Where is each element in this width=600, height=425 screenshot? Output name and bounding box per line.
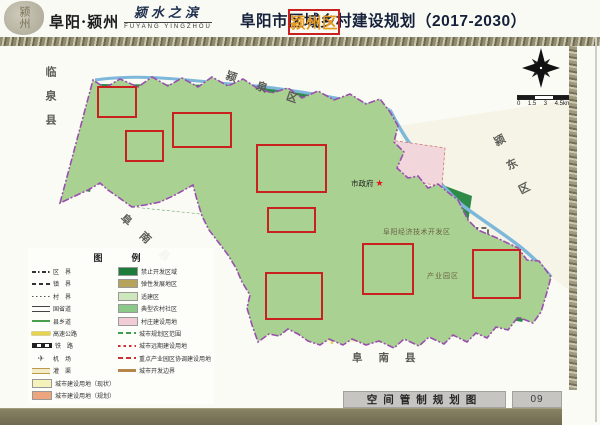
canal-symbol bbox=[32, 368, 50, 374]
yingzhou-seal-logo: 颍州 bbox=[4, 1, 44, 35]
highlight-box-3 bbox=[172, 112, 232, 148]
title-highlight: 颍州区 bbox=[288, 9, 340, 35]
legend-item: 城市开发边界 bbox=[118, 366, 210, 375]
scale-tick: 3 bbox=[544, 101, 547, 107]
highlight-box-2 bbox=[125, 130, 164, 162]
urban-planned-swatch bbox=[32, 391, 52, 400]
city-hall-star-icon: ★ bbox=[376, 179, 384, 188]
drawing-caption: 空间管制规划图 bbox=[343, 391, 506, 408]
city-hall-label: 市政府 bbox=[351, 178, 374, 189]
legend-item: 城市建设用地（规划） bbox=[32, 391, 112, 400]
long-term-land-symbol bbox=[118, 345, 136, 347]
legend-right-column: 禁止开发区域 弹性发展地区 适建区 典型农村社区 村庄建设用地 城市规划区范围 … bbox=[118, 267, 210, 400]
national-road-symbol bbox=[32, 306, 50, 312]
region-label-funan-south: 阜南县 bbox=[352, 350, 432, 365]
legend-item: 重点产业园区协调建设用地 bbox=[118, 354, 210, 363]
legend-title: 图 例 bbox=[32, 251, 212, 264]
legend-item: 村 界 bbox=[32, 292, 112, 301]
page-edge-line bbox=[595, 37, 597, 422]
brand-text: 阜阳·颍州 bbox=[49, 11, 119, 32]
braid-border-top bbox=[0, 37, 600, 46]
highlight-box-1 bbox=[97, 86, 137, 118]
highlight-box-4 bbox=[256, 144, 327, 193]
town-boundary-symbol bbox=[32, 283, 50, 285]
highlight-box-8 bbox=[472, 249, 521, 299]
poi-dev-zone: 阜阳经济技术开发区 bbox=[383, 227, 451, 237]
poi-industry-park: 产业园区 bbox=[427, 271, 459, 281]
slogan-block: 颍水之滨 FUYANG YINGZHOU bbox=[122, 2, 214, 30]
growth-boundary-symbol bbox=[118, 369, 136, 372]
highlight-box-5 bbox=[267, 207, 316, 233]
page-number: 09 bbox=[512, 391, 562, 408]
planning-map-page: 临泉县 颍泉区 颍东区 阜南县 阜南县 市政府 ★ 阜阳经济技术开发区 产业园区… bbox=[0, 0, 600, 425]
expressway-symbol bbox=[32, 332, 50, 335]
legend-item: 禁止开发区域 bbox=[118, 267, 210, 276]
railway-symbol bbox=[32, 343, 52, 348]
legend-item: 灌 渠 bbox=[32, 366, 112, 375]
highlight-box-6 bbox=[265, 272, 323, 320]
urban-existing-swatch bbox=[32, 379, 52, 388]
airport-symbol-icon bbox=[32, 354, 50, 363]
legend-item: 弹性发展地区 bbox=[118, 279, 210, 288]
village-boundary-symbol bbox=[32, 296, 50, 298]
rural-community-swatch bbox=[118, 304, 138, 313]
industry-park-land-symbol bbox=[118, 357, 136, 359]
legend-item: 城市规划区范围 bbox=[118, 329, 210, 338]
legend-item: 高速公路 bbox=[32, 329, 112, 338]
legend-item: 国省道 bbox=[32, 304, 112, 313]
county-road-symbol bbox=[32, 320, 50, 322]
slogan-calligraphy: 颍水之滨 bbox=[122, 2, 214, 21]
village-land-swatch bbox=[118, 317, 138, 326]
compass-rose-icon bbox=[516, 48, 566, 92]
legend-item: 机 场 bbox=[32, 354, 112, 363]
title-prefix: 阜阳市 bbox=[240, 13, 288, 30]
braid-border-right bbox=[569, 46, 577, 390]
page-title: 阜阳市颍州区区域乡村建设规划（2017-2030） bbox=[240, 9, 527, 31]
slogan-english: FUYANG YINGZHOU bbox=[122, 24, 214, 30]
slogan-divider bbox=[124, 22, 212, 23]
highlight-box-7 bbox=[362, 243, 414, 295]
poi-city-hall: 市政府 ★ bbox=[351, 178, 384, 189]
legend-item: 县乡道 bbox=[32, 317, 112, 326]
legend-item: 铁 路 bbox=[32, 341, 112, 350]
scale-tick: 1.5 bbox=[528, 101, 536, 107]
scale-tick: 0 bbox=[517, 101, 520, 107]
suitable-area-swatch bbox=[118, 292, 138, 301]
legend-item: 区 界 bbox=[32, 267, 112, 276]
flexible-area-swatch bbox=[118, 279, 138, 288]
prohibited-area-swatch bbox=[118, 267, 138, 276]
legend-item: 适建区 bbox=[118, 292, 210, 301]
region-label-linquan: 临泉县 bbox=[42, 66, 58, 138]
district-boundary-symbol bbox=[32, 271, 50, 273]
legend-item: 城市建设用地（现状） bbox=[32, 379, 112, 388]
legend-left-column: 区 界 镇 界 村 界 国省道 县乡道 高速公路 铁 路 机 场 灌 渠 城市建… bbox=[32, 267, 112, 400]
legend-panel: 图 例 区 界 镇 界 村 界 国省道 县乡道 高速公路 铁 路 机 场 灌 渠… bbox=[28, 248, 214, 404]
legend-item: 镇 界 bbox=[32, 279, 112, 288]
legend-item: 典型农村社区 bbox=[118, 304, 210, 313]
scale-bar: 0 1.5 3 4.5km bbox=[517, 95, 571, 107]
scale-bar-segments bbox=[517, 95, 571, 100]
legend-item: 村庄建设用地 bbox=[118, 317, 210, 326]
header: 颍州 阜阳·颍州 颍水之滨 FUYANG YINGZHOU 阜阳市颍州区区域乡村… bbox=[0, 0, 600, 37]
bottom-olive-bar bbox=[0, 408, 562, 425]
legend-item: 城市远期建设用地 bbox=[118, 341, 210, 350]
planning-scope-symbol bbox=[118, 332, 136, 334]
